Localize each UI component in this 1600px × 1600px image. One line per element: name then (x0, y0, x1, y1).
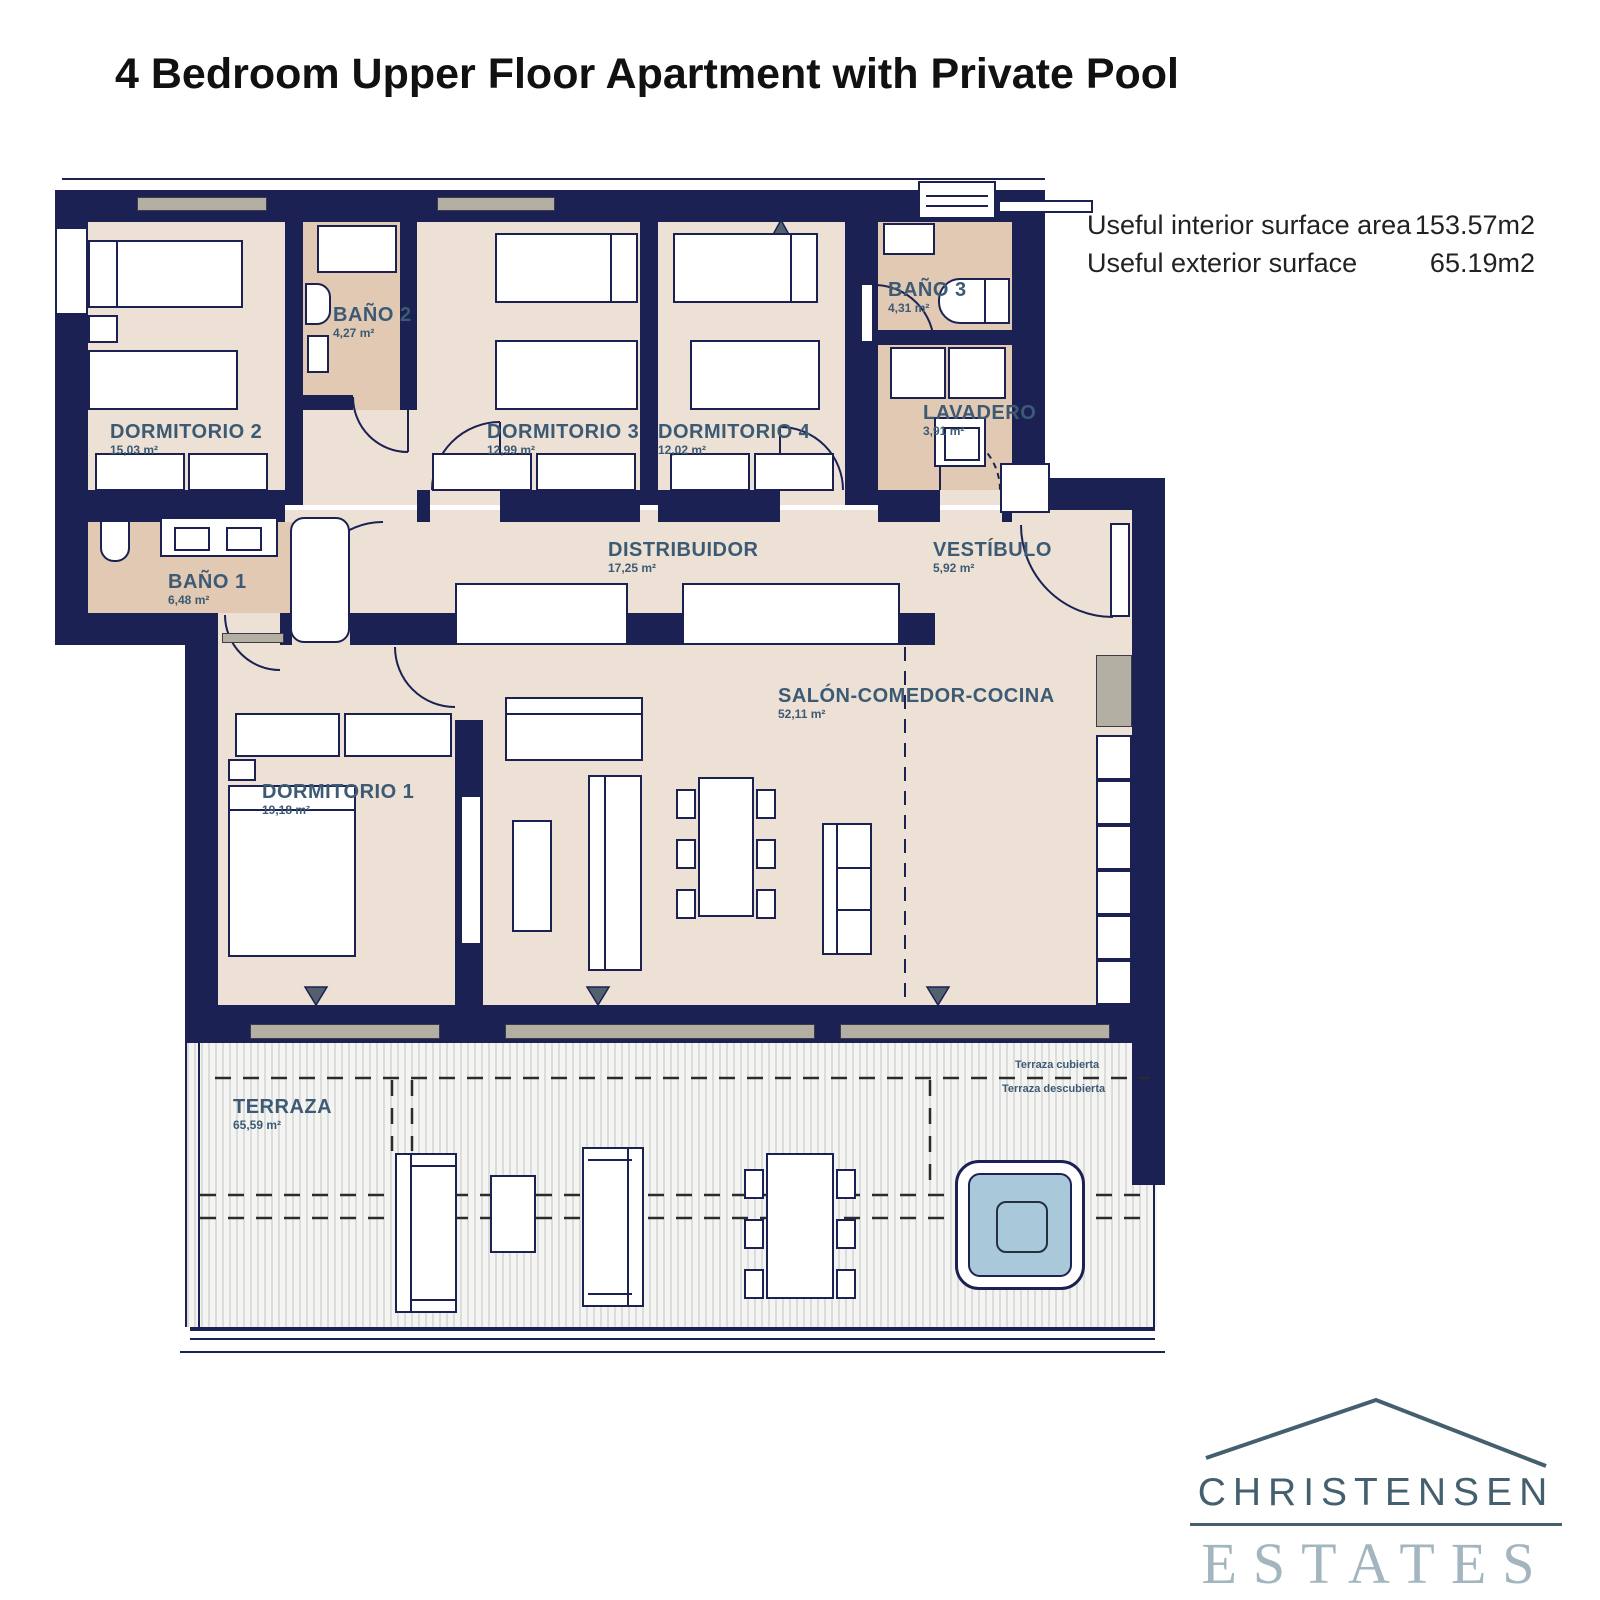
kitchen-unit (1096, 960, 1132, 1005)
bed (495, 340, 638, 410)
dining-chair (676, 839, 696, 869)
hall-closet (455, 583, 628, 645)
tv-panel (460, 795, 482, 945)
sofa-back-line (507, 713, 641, 715)
lounger-bar (588, 1159, 632, 1161)
cushion-line (838, 867, 870, 869)
laundry-counter (948, 347, 1006, 399)
wall-corridor-bottom-4 (628, 613, 682, 645)
wall-right-upper (1012, 190, 1045, 510)
lounger-bar (410, 1155, 412, 1311)
kitchen-unit (1096, 915, 1132, 960)
logo-roof-icon (1188, 1392, 1564, 1480)
window-left-wall (55, 227, 88, 315)
sliding-door-2 (505, 1024, 815, 1039)
bed (495, 233, 638, 303)
wardrobe (432, 453, 532, 491)
room-label-dormitorio-1: DORMITORIO 1 19,18 m² (262, 782, 414, 817)
dining-chair (676, 889, 696, 919)
wall-corridor-top-4 (658, 490, 780, 522)
pool-step (996, 1201, 1048, 1253)
dining-chair (676, 789, 696, 819)
room-label-dormitorio-3: DORMITORIO 3 12,99 m² (487, 422, 639, 457)
pillow-line (116, 242, 118, 306)
floor-plan: DORMITORIO 2 15,03 m² BAÑO 2 4,27 m² DOR… (50, 175, 1170, 1370)
interior-surface-value: 153.57m2 (1415, 210, 1535, 241)
wall-corridor-top-3 (500, 490, 640, 522)
sun-lounger (582, 1147, 644, 1307)
dining-chair (756, 789, 776, 819)
wall-corridor-top-5 (878, 490, 940, 522)
wall-corridor-bottom-3 (350, 613, 455, 645)
roof-overhang-line (62, 178, 1045, 180)
room-label-dormitorio-2: DORMITORIO 2 15,03 m² (110, 422, 262, 457)
terrace-chair (836, 1269, 856, 1299)
door-leaf-bath3 (860, 283, 874, 343)
sofa-back-line (604, 777, 606, 969)
room-label-vestibulo: VESTÍBULO 5,92 m² (933, 540, 1052, 575)
wardrobe (188, 453, 268, 491)
wardrobe (344, 713, 452, 757)
logo-rule (1190, 1523, 1562, 1526)
wardrobe (235, 713, 340, 757)
pillow-line (610, 235, 612, 301)
dining-chair (756, 889, 776, 919)
washbasin (883, 223, 935, 255)
sink (226, 527, 262, 551)
tub-divider (984, 280, 986, 322)
bed (88, 350, 238, 410)
wall-corridor-bottom-1 (88, 613, 218, 645)
shaft-box (1000, 463, 1050, 513)
sink (174, 527, 210, 551)
terrace-chair (744, 1169, 764, 1199)
wall-bath3-bottom (878, 330, 1012, 345)
pillow-line (790, 235, 792, 301)
terrace-chair (836, 1219, 856, 1249)
window-mullion (926, 205, 988, 207)
wall-vestibule-stub (900, 613, 935, 645)
kitchen-unit (1096, 870, 1132, 915)
terrace-chair (836, 1169, 856, 1199)
wall-bath2-bottom (303, 395, 353, 410)
wardrobe (670, 453, 750, 491)
room-label-bano-3: BAÑO 3 4,31 m² (888, 280, 967, 315)
lounger-bar (588, 1293, 632, 1295)
kitchen-unit (1096, 825, 1132, 870)
room-label-dormitorio-4: DORMITORIO 4 12,02 m² (658, 422, 810, 457)
wardrobe (754, 453, 834, 491)
sink-cabinet (307, 335, 329, 373)
kitchen-counter (1096, 655, 1132, 727)
window-mullion (926, 195, 988, 197)
window-dorm3 (437, 197, 555, 211)
toilet (100, 520, 130, 562)
wall-dorm2-right (285, 222, 303, 505)
nightstand (228, 759, 256, 781)
lounger-bar (411, 1299, 455, 1301)
sliding-door-1 (250, 1024, 440, 1039)
cushion-line (838, 909, 870, 911)
wall-right-main (1132, 510, 1165, 1185)
entry-door-leaf (1110, 523, 1130, 617)
bed (88, 240, 243, 308)
terrace-covered-note: Terraza cubierta (1015, 1059, 1099, 1071)
window-dorm2 (137, 197, 267, 211)
logo-type: ESTATES (1188, 1530, 1564, 1597)
side-table (490, 1175, 536, 1253)
private-pool (955, 1160, 1085, 1290)
agency-logo: CHRISTENSEN ESTATES (1188, 1392, 1564, 1597)
bed (690, 340, 820, 410)
terrace-chair (744, 1269, 764, 1299)
hall-closet (682, 583, 900, 645)
lounger-bar (411, 1165, 455, 1167)
room-label-bano-1: BAÑO 1 6,48 m² (168, 572, 247, 607)
bathtub (290, 517, 350, 643)
window-top-right (918, 181, 996, 219)
wall-corridor-top-2 (417, 490, 430, 522)
wardrobe (95, 453, 185, 491)
dining-table (698, 777, 754, 917)
wall-dorm3-dorm4 (640, 222, 658, 505)
room-label-salon: SALÓN-COMEDOR-COCINA 52,11 m² (778, 686, 1055, 721)
sliding-door-3 (840, 1024, 1110, 1039)
window-bath3 (998, 200, 1093, 213)
terrace-left-line (198, 1043, 200, 1327)
nightstand (88, 315, 118, 343)
sofa (505, 697, 643, 761)
shower-tray (317, 225, 397, 273)
wall-left-lower (185, 630, 218, 1043)
door-sill-bath1 (222, 633, 284, 643)
sofa-chaise (588, 775, 642, 971)
exterior-surface-value: 65.19m2 (1430, 248, 1535, 279)
lounger-bar (627, 1149, 629, 1305)
room-label-terraza: TERRAZA 65,59 m² (233, 1097, 332, 1132)
terrace-bottom-rail (190, 1327, 1155, 1340)
room-label-bano-2: BAÑO 2 4,27 m² (333, 305, 412, 340)
sideboard (512, 820, 552, 932)
kitchen-unit (1096, 780, 1132, 825)
terrace-chair (744, 1219, 764, 1249)
sofa-back-line (836, 825, 838, 953)
wall-dorm4-right (845, 222, 878, 505)
room-label-lavadero: LAVADERO 3,91 m² (923, 403, 1036, 438)
bed (673, 233, 818, 303)
floorplan-page: 4 Bedroom Upper Floor Apartment with Pri… (0, 0, 1600, 1600)
vanity-counter (160, 517, 278, 557)
room-label-distribuidor: DISTRIBUIDOR 17,25 m² (608, 540, 758, 575)
logo-name: CHRISTENSEN (1188, 1471, 1564, 1515)
laundry-counter (890, 347, 946, 399)
page-title: 4 Bedroom Upper Floor Apartment with Pri… (115, 50, 1179, 99)
sofa (822, 823, 872, 955)
kitchen-unit (1096, 735, 1132, 780)
terrace-table (766, 1153, 834, 1299)
terrace-bottom-line (180, 1351, 1165, 1353)
terrace-uncovered-note: Terraza descubierta (1002, 1083, 1105, 1095)
dining-chair (756, 839, 776, 869)
wardrobe (536, 453, 636, 491)
toilet (305, 283, 331, 325)
sun-lounger (395, 1153, 457, 1313)
